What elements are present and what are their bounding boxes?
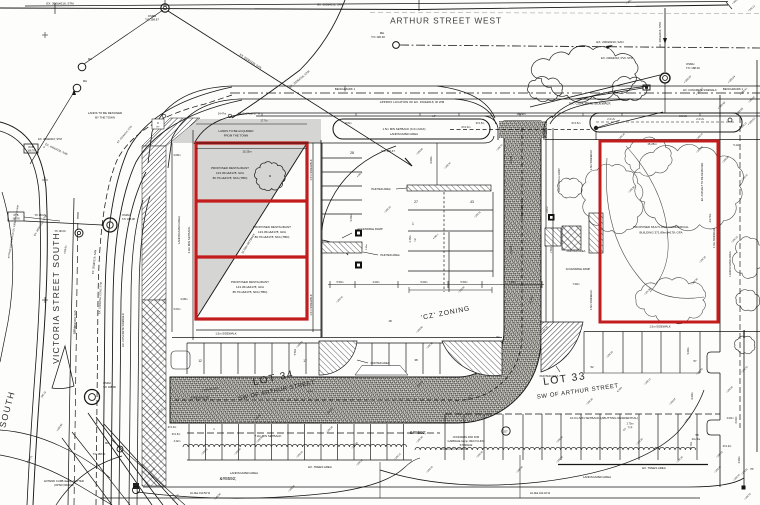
svg-text:86.76m&#178; NFA (TBD): 86.76m&#178; NFA (TBD): [213, 176, 248, 180]
svg-text:188.78: 188.78: [27, 150, 35, 153]
svg-text:LANDSCAPED AREA: LANDSCAPED AREA: [177, 216, 181, 244]
svg-text:4.00m: 4.00m: [373, 281, 380, 284]
svg-text:EX. ASPHALT TO BE REMOVED: EX. ASPHALT TO BE REMOVED: [700, 163, 704, 202]
svg-text:1.5m SIDEWALK: 1.5m SIDEWALK: [215, 332, 236, 336]
svg-text:R=1.5m: R=1.5m: [476, 122, 484, 125]
svg-text:1.5m SIDEWALK: 1.5m SIDEWALK: [309, 159, 313, 180]
svg-text:12: 12: [198, 359, 202, 363]
svg-text:5.50m: 5.50m: [295, 349, 297, 355]
svg-text:EX. 300&#216; STM: EX. 300&#216; STM: [38, 137, 62, 141]
svg-text:T/C 188.91: T/C 188.91: [93, 452, 106, 456]
svg-text:N43&#176;57'57''W: N43&#176;57'57''W: [238, 113, 261, 116]
svg-text:5.50m: 5.50m: [337, 281, 344, 284]
svg-text:EX. CONCRETE SIDEWALK: EX. CONCRETE SIDEWALK: [121, 313, 125, 347]
svg-text:123.45m&#178; GFA: 123.45m&#178; GFA: [258, 230, 286, 234]
svg-text:18: 18: [388, 319, 392, 323]
svg-text:123.45m&#178; GFA: 123.45m&#178; GFA: [216, 171, 244, 175]
svg-text:(OPSD 600.040): (OPSD 600.040): [54, 483, 74, 487]
svg-text:T/C 188.02: T/C 188.02: [686, 66, 700, 70]
svg-text:&#8592;: &#8592;: [220, 476, 237, 481]
svg-text:R=6m: R=6m: [345, 122, 351, 125]
svg-text:PROPOSED MULTI-UNIT COMMERCIAL: PROPOSED MULTI-UNIT COMMERCIAL: [633, 225, 689, 229]
svg-text:LANDSCAPED AREA: LANDSCAPED AREA: [230, 471, 258, 475]
svg-text:1: 1: [412, 222, 414, 226]
svg-text:LANDS TO BE ACQUIRED: LANDS TO BE ACQUIRED: [219, 129, 254, 133]
svg-text:+190.28: +190.28: [511, 245, 513, 254]
svg-text:PROPOSED RESTAURANT: PROPOSED RESTAURANT: [211, 166, 249, 170]
svg-text:EX. 200&#216; SAN: EX. 200&#216; SAN: [596, 40, 623, 44]
svg-text:86.76m&#178; NFA (TBD): 86.76m&#178; NFA (TBD): [233, 290, 268, 294]
svg-text:GARBAGE &amp; RECYCLING: GARBAGE &amp; RECYCLING: [448, 439, 485, 443]
svg-text:ACCESSIBLE RAMP: ACCESSIBLE RAMP: [566, 267, 591, 271]
svg-text:3.00m: 3.00m: [738, 457, 741, 464]
svg-text:52: 52: [590, 365, 594, 369]
svg-text:+190.43: +190.43: [511, 155, 513, 164]
svg-text:&#8592;: &#8592;: [410, 430, 427, 435]
svg-text:STORAGE: STORAGE: [460, 443, 473, 447]
svg-text:1.5m MIN SETBACK (6.0m MAX): 1.5m MIN SETBACK (6.0m MAX): [382, 127, 425, 131]
svg-text:PROPOSED RESTAURANT: PROPOSED RESTAURANT: [231, 280, 269, 284]
svg-text:T/C 190.30: T/C 190.30: [371, 35, 385, 39]
svg-text:TYP: TYP: [628, 427, 633, 430]
svg-text:1.5m SIDEWALK: 1.5m SIDEWALK: [589, 150, 593, 171]
svg-text:5.00m: 5.00m: [421, 281, 428, 284]
svg-text:1.5m SIDEWALK: 1.5m SIDEWALK: [589, 290, 593, 311]
svg-text:R=1.0m: R=1.0m: [168, 426, 176, 429]
svg-text:EX. TREES AREA: EX. TREES AREA: [642, 466, 666, 470]
svg-text:T/C 188.98: T/C 188.98: [122, 217, 135, 221]
svg-text:2.3 LS: 2.3 LS: [607, 117, 615, 121]
svg-text:Fire Rte: Fire Rte: [692, 438, 701, 441]
svg-text:HP: HP: [750, 468, 754, 471]
svg-text:57: 57: [693, 359, 697, 363]
svg-text:FIRE ROUTE: FIRE ROUTE: [191, 396, 209, 400]
svg-text:6.00m: 6.00m: [430, 157, 433, 164]
svg-text:7.0m MIN SETBACK: 7.0m MIN SETBACK: [255, 434, 282, 438]
svg-text:86.76m&#178; NFA (TBD): 86.76m&#178; NFA (TBD): [255, 235, 290, 239]
svg-text:3.0m MIN SETBACK: 3.0m MIN SETBACK: [187, 227, 191, 254]
svg-text:HY: HY: [156, 127, 160, 129]
svg-text:5.14m: 5.14m: [733, 143, 740, 147]
svg-text:PAINTED AREA: PAINTED AREA: [380, 253, 400, 257]
svg-text:Hz-Mat 190.50 W: Hz-Mat 190.50 W: [190, 491, 211, 495]
svg-text:MH: MH: [83, 79, 87, 83]
svg-text:28: 28: [350, 151, 354, 155]
svg-text:18.29m: 18.29m: [517, 112, 527, 116]
svg-text:LANDSCAPED AREA: LANDSCAPED AREA: [728, 251, 732, 276]
svg-text:15.25m: 15.25m: [647, 142, 657, 146]
svg-text:OSMH: OSMH: [103, 381, 111, 385]
svg-text:3.42m: 3.42m: [174, 440, 181, 443]
svg-text:LANDSCAPED AREA: LANDSCAPED AREA: [583, 475, 611, 479]
svg-text:15.25m: 15.25m: [242, 150, 252, 154]
svg-text:2.3 LS: 2.3 LS: [696, 117, 704, 121]
svg-text:2.75m: 2.75m: [409, 236, 412, 243]
svg-text:PAINTED AREA: PAINTED AREA: [567, 249, 586, 253]
svg-text:R=1.5m: R=1.5m: [172, 433, 180, 436]
svg-text:38: 38: [414, 358, 418, 362]
svg-text:LANDSCAPED AREA: LANDSCAPED AREA: [390, 132, 418, 136]
svg-text:PAINTED AREA: PAINTED AREA: [371, 187, 391, 191]
svg-text:E7: E7: [504, 430, 508, 434]
svg-text:EX. 300&#216; STM: EX. 300&#216; STM: [658, 22, 662, 48]
svg-text:BY THE TOWN: BY THE TOWN: [95, 116, 115, 120]
svg-text:1.5m SIDEWALK: 1.5m SIDEWALK: [649, 325, 670, 329]
svg-text:5.40m: 5.40m: [350, 215, 353, 222]
svg-text:5.50m: 5.50m: [461, 281, 468, 284]
svg-text:MH: MH: [105, 441, 109, 445]
svg-text:Hz-Mat 192.02 W: Hz-Mat 192.02 W: [530, 491, 551, 495]
svg-text:CONCRETE PAD FOR: CONCRETE PAD FOR: [453, 435, 480, 439]
svg-text:PAINTED AREA: PAINTED AREA: [371, 361, 390, 365]
svg-text:3.08m: 3.08m: [173, 153, 180, 157]
svg-text:24.70m: 24.70m: [708, 214, 712, 223]
svg-text:1.5m SIDEWALK: 1.5m SIDEWALK: [712, 228, 716, 248]
svg-text:R=1.5m: R=1.5m: [572, 122, 581, 125]
svg-text:EX. 200&#216; PVC STM: EX. 200&#216; PVC STM: [601, 56, 634, 60]
svg-text:3.00m: 3.00m: [727, 417, 734, 420]
svg-text:7.60m: 7.60m: [573, 283, 580, 286]
svg-text:LANDS TO BE RETAINED: LANDS TO BE RETAINED: [88, 111, 122, 115]
svg-text:T/C 188.80: T/C 188.80: [103, 385, 116, 389]
svg-text:7.30m: 7.30m: [509, 281, 516, 284]
svg-text:+190.2: +190.2: [547, 206, 549, 214]
svg-text:EX. TREES AREA: EX. TREES AREA: [308, 465, 332, 469]
svg-text:FIRE ROUTE: FIRE ROUTE: [520, 201, 524, 219]
svg-text:10.0m MIN SETBACK (ABUTTING RE: 10.0m MIN SETBACK (ABUTTING RESIDENTIAL): [570, 416, 638, 420]
svg-text:ARTHUR STREET WEST: ARTHUR STREET WEST: [390, 16, 502, 26]
svg-text:2.75m: 2.75m: [627, 423, 634, 426]
svg-text:BENCHMARK 1: BENCHMARK 1: [723, 87, 744, 91]
svg-text:27: 27: [414, 200, 418, 204]
svg-text:BUILDING 371.89m&#178; GFA: BUILDING 371.89m&#178; GFA: [639, 231, 682, 235]
svg-text:R=1.0m: R=1.0m: [723, 445, 731, 448]
svg-text:VICTORIA STREET SOUTH: VICTORIA STREET SOUTH: [51, 232, 61, 364]
svg-text:EX. 200&#216; SAN: EX. 200&#216; SAN: [317, 3, 342, 7]
svg-text:APPROX LOCATION OF EX. 150&#21: APPROX LOCATION OF EX. 150&#216; ID WM: [380, 100, 445, 104]
svg-text:OSMH: OSMH: [122, 213, 130, 217]
svg-text:FROM THE TOWN: FROM THE TOWN: [224, 134, 249, 138]
svg-text:5.00m: 5.00m: [687, 348, 690, 355]
svg-text:LP: LP: [433, 115, 436, 118]
svg-text:123.45m&#178; GFA: 123.45m&#178; GFA: [236, 285, 264, 289]
svg-text:PAINTED AREA: PAINTED AREA: [540, 374, 559, 378]
svg-text:PROPOSED RESTAURANT: PROPOSED RESTAURANT: [253, 225, 291, 229]
svg-text:EXTEND CURB &amp; GUTTER: EXTEND CURB &amp; GUTTER: [44, 479, 84, 483]
svg-text:EX. CONCRETE SIDEWALK: EX. CONCRETE SIDEWALK: [683, 88, 717, 92]
svg-text:6.00m: 6.00m: [691, 393, 694, 400]
svg-text:17: 17: [303, 359, 307, 363]
svg-text:1.90m: 1.90m: [366, 244, 368, 250]
svg-text:5.03m: 5.03m: [174, 308, 181, 311]
svg-text:3.08m: 3.08m: [180, 297, 187, 301]
svg-text:24.47m: 24.47m: [218, 113, 226, 116]
svg-text:R=1.0m: R=1.0m: [462, 126, 471, 129]
svg-text:2.3 LS: 2.3 LS: [679, 114, 687, 118]
svg-text:3.00m: 3.00m: [735, 417, 738, 424]
svg-text:1.5m SIDEWALK: 1.5m SIDEWALK: [309, 294, 313, 315]
svg-text:17.7m: 17.7m: [261, 120, 268, 123]
svg-text:EX. 300&#216; STM: EX. 300&#216; STM: [46, 2, 74, 6]
svg-text:90.28m: 90.28m: [743, 330, 746, 338]
svg-text:43: 43: [470, 200, 474, 204]
svg-text:T/C 190.91: T/C 190.91: [54, 231, 66, 233]
svg-text:TYP: TYP: [415, 237, 417, 242]
